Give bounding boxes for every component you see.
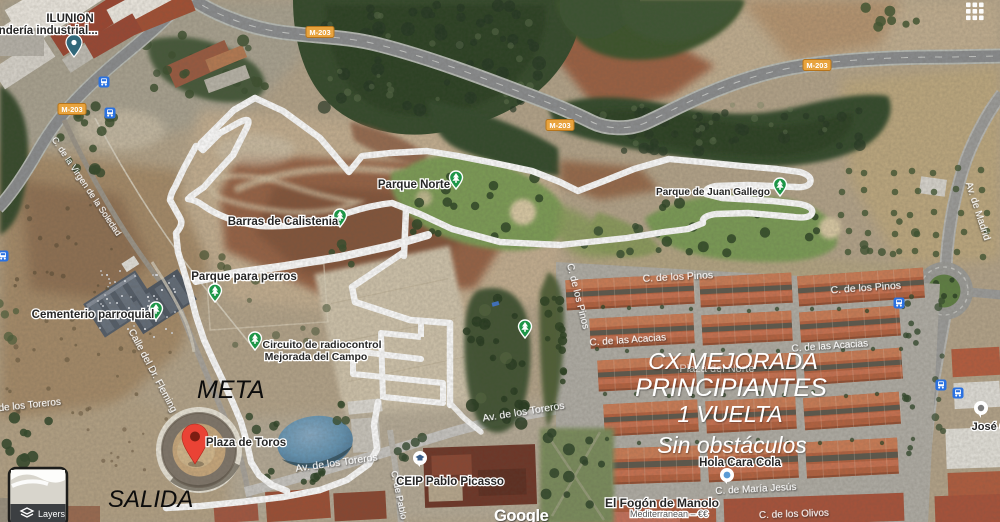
- svg-text:Cementerio parroquial: Cementerio parroquial: [32, 309, 155, 321]
- svg-text:M-203: M-203: [806, 61, 827, 70]
- svg-text:ILUNION: ILUNION: [46, 13, 93, 25]
- svg-text:M-203: M-203: [549, 121, 570, 130]
- svg-text:PRINCIPIANTES: PRINCIPIANTES: [635, 374, 827, 402]
- svg-text:CEIP Pablo Picasso: CEIP Pablo Picasso: [396, 476, 504, 488]
- svg-text:Sin obstáculos: Sin obstáculos: [657, 432, 807, 458]
- svg-text:Google: Google: [494, 507, 549, 522]
- svg-text:José O: José O: [972, 421, 1000, 433]
- svg-text:andería industrial...: andería industrial...: [0, 25, 98, 37]
- svg-text:Layers: Layers: [38, 509, 66, 519]
- svg-text:1 VUELTA: 1 VUELTA: [677, 401, 782, 427]
- svg-text:Parque Norte: Parque Norte: [378, 179, 450, 191]
- svg-text:Mejorada del Campo: Mejorada del Campo: [265, 351, 368, 363]
- svg-text:Plaza de Toros: Plaza de Toros: [206, 437, 286, 449]
- svg-text:Barras de Calistenia: Barras de Calistenia: [228, 216, 339, 228]
- svg-text:Mediterranean – €€: Mediterranean – €€: [630, 509, 708, 519]
- svg-text:M-203: M-203: [61, 105, 82, 114]
- svg-text:Circuito de radiocontrol: Circuito de radiocontrol: [262, 339, 381, 351]
- svg-text:El Fogón de Manolo: El Fogón de Manolo: [605, 496, 719, 510]
- svg-text:CX MEJORADA: CX MEJORADA: [648, 348, 818, 374]
- svg-text:SALIDA: SALIDA: [108, 486, 193, 513]
- svg-text:Parque para perros: Parque para perros: [191, 271, 296, 283]
- svg-text:META: META: [197, 376, 265, 404]
- svg-text:Hola Cara Cola: Hola Cara Cola: [699, 457, 781, 469]
- svg-text:M-203: M-203: [309, 28, 330, 37]
- svg-text:Parque de Juan Gallego: Parque de Juan Gallego: [656, 187, 770, 198]
